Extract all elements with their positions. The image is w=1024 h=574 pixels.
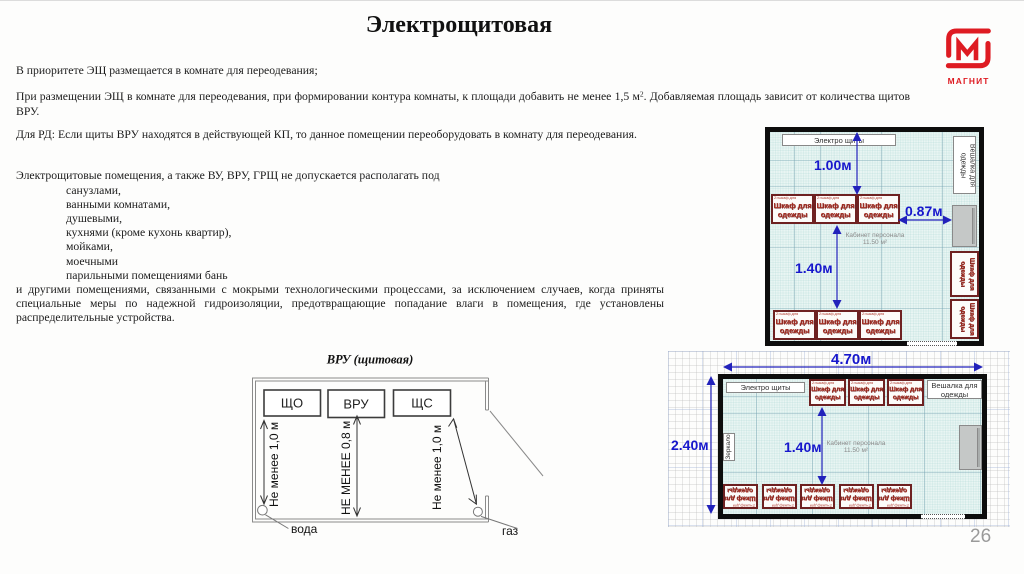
svg-text:ЩО: ЩО bbox=[281, 396, 303, 411]
svg-text:ВРУ (щитовая): ВРУ (щитовая) bbox=[326, 353, 414, 367]
svg-text:Не менее 1,0 м: Не менее 1,0 м bbox=[430, 425, 444, 510]
svg-text:Не менее 1,0 м: Не менее 1,0 м bbox=[267, 422, 281, 507]
svg-text:НЕ МЕНЕЕ 0,8 м: НЕ МЕНЕЕ 0,8 м bbox=[339, 421, 353, 515]
svg-text:газ: газ bbox=[502, 524, 519, 538]
svg-text:МАГНИТ: МАГНИТ bbox=[948, 76, 990, 86]
svg-text:ВРУ: ВРУ bbox=[343, 397, 369, 412]
svg-text:вода: вода bbox=[291, 522, 318, 536]
svg-text:ЩС: ЩС bbox=[411, 396, 433, 411]
